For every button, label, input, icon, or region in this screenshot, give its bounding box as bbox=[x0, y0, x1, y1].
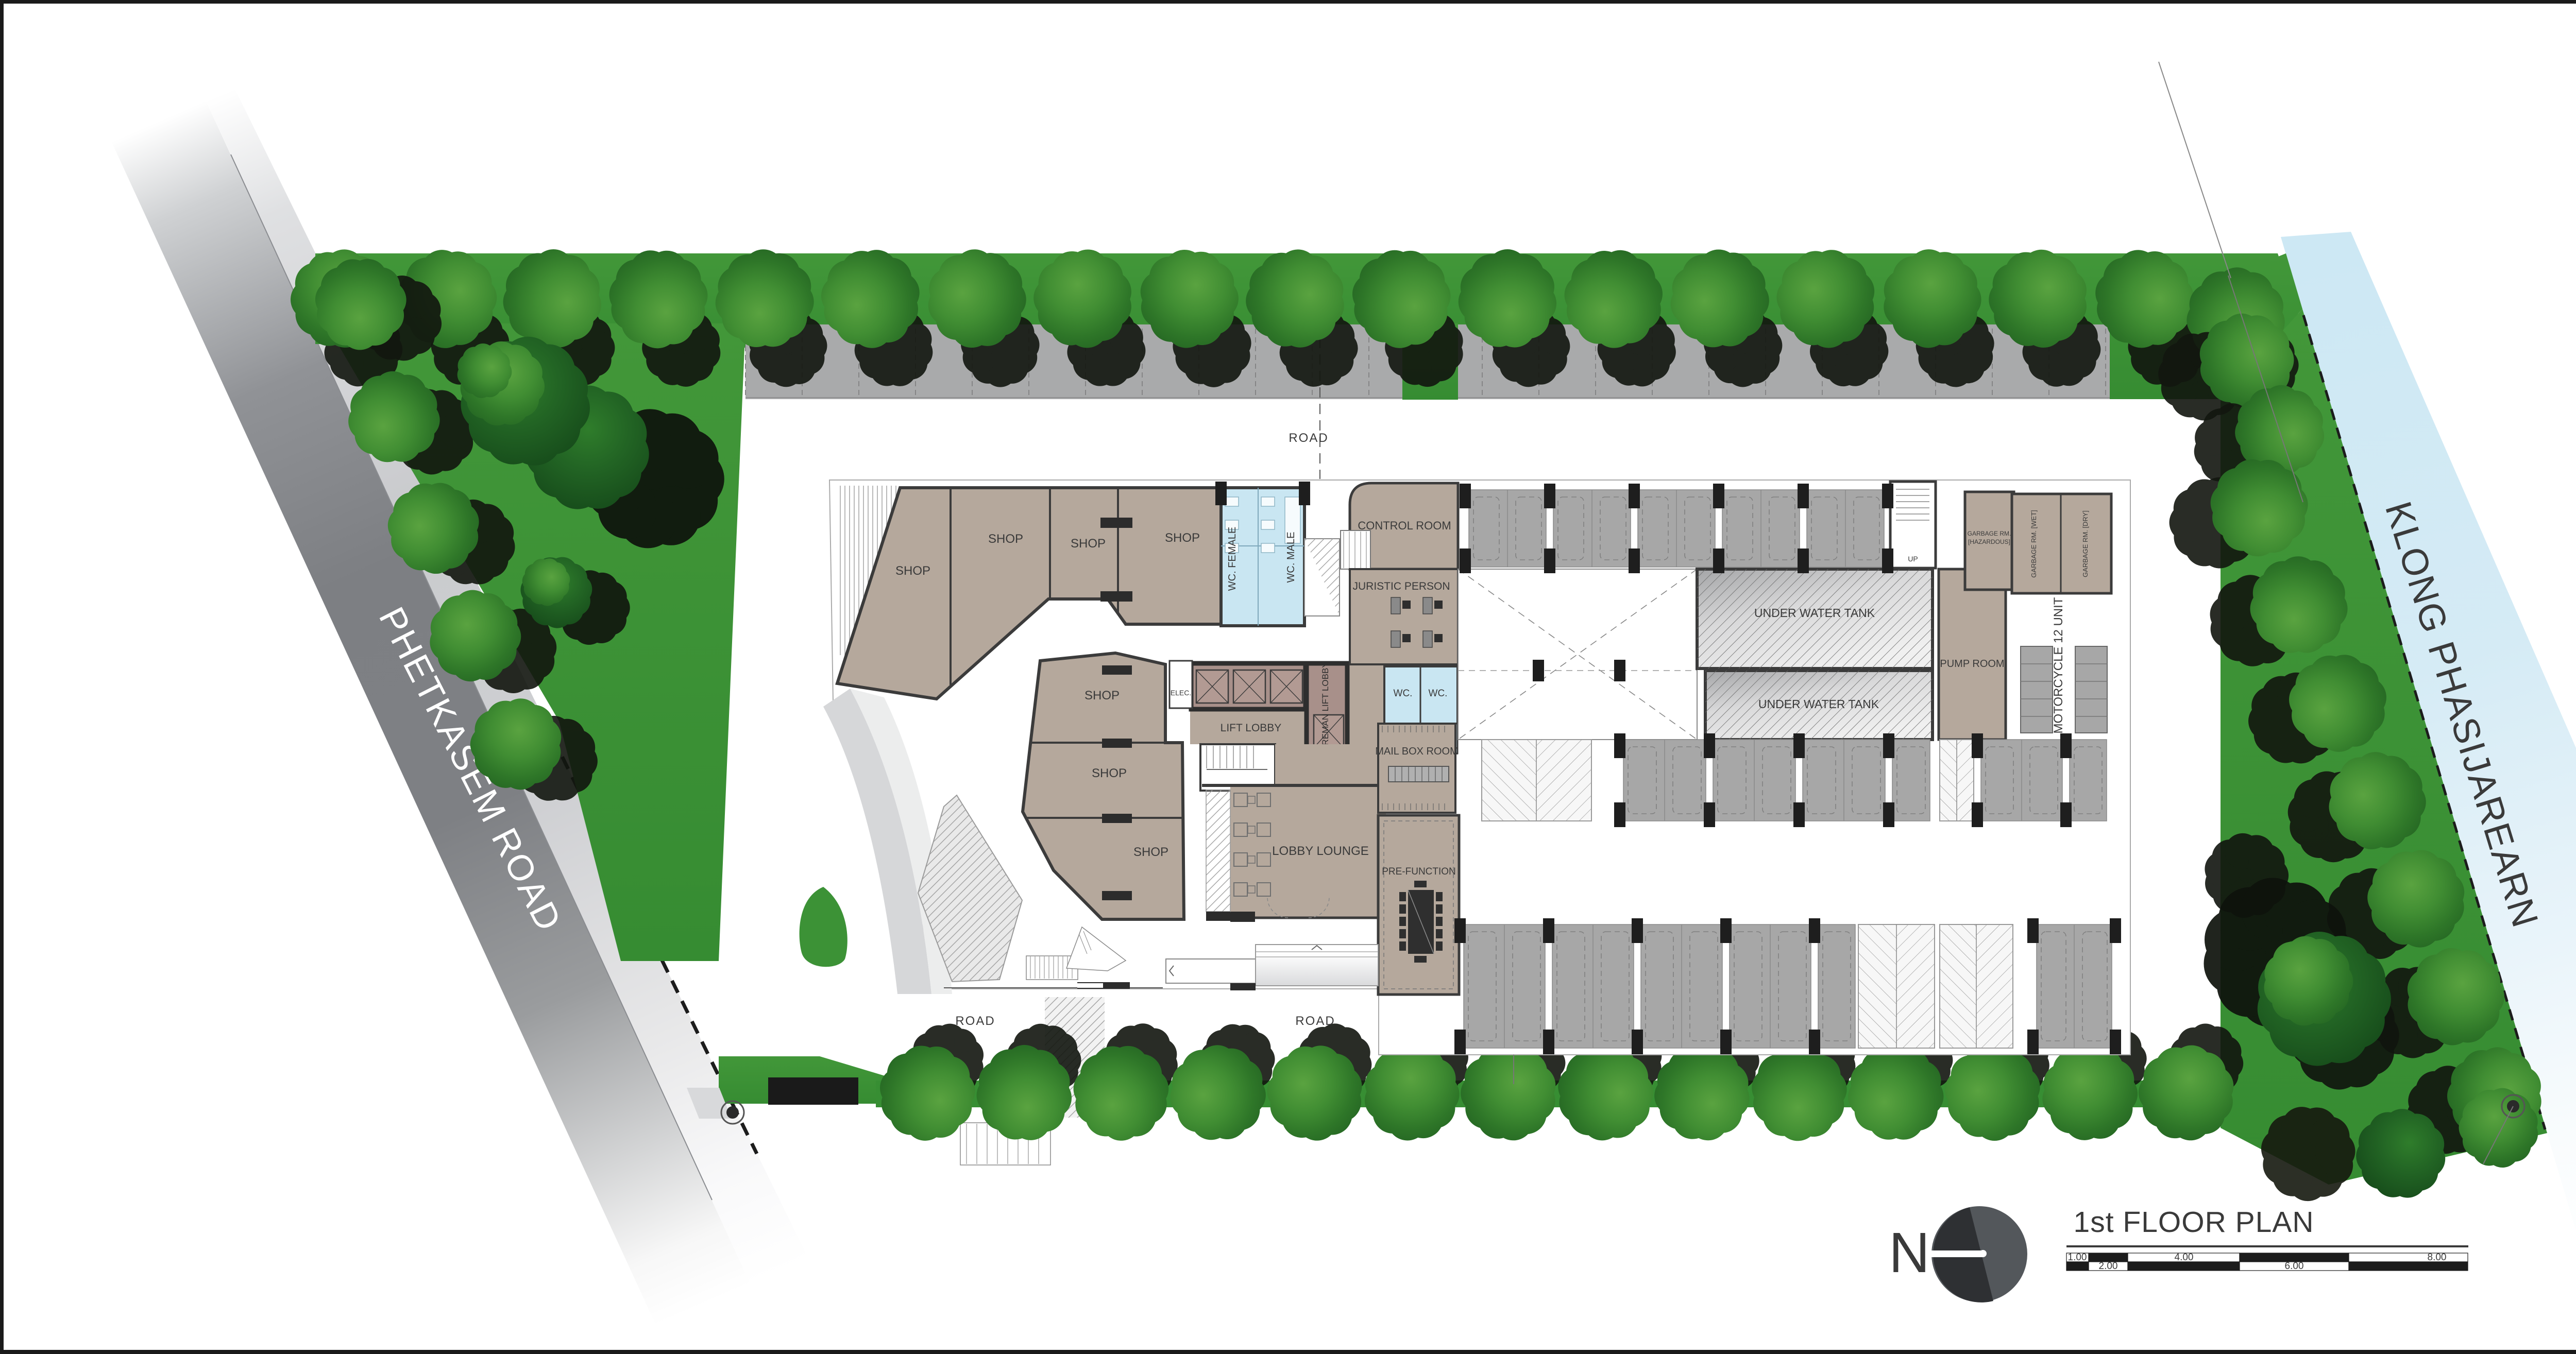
svg-text:LIFT LOBBY: LIFT LOBBY bbox=[1221, 722, 1282, 734]
svg-text:CONTROL ROOM: CONTROL ROOM bbox=[1358, 519, 1451, 532]
svg-text:MAIL BOX ROOM: MAIL BOX ROOM bbox=[1375, 746, 1459, 757]
svg-text:ELEC.: ELEC. bbox=[1171, 689, 1191, 697]
svg-text:JURISTIC PERSON: JURISTIC PERSON bbox=[1352, 580, 1450, 592]
svg-text:GARBAGE RM. [DRY]: GARBAGE RM. [DRY] bbox=[2081, 510, 2089, 577]
svg-text:UNDER WATER TANK: UNDER WATER TANK bbox=[1758, 697, 1879, 711]
svg-text:8.00: 8.00 bbox=[2428, 1252, 2447, 1263]
svg-text:SHOP: SHOP bbox=[1071, 537, 1106, 551]
svg-text:UNDER WATER TANK: UNDER WATER TANK bbox=[1754, 606, 1875, 620]
svg-text:SHOP: SHOP bbox=[1092, 766, 1127, 780]
svg-text:WC. FEMALE: WC. FEMALE bbox=[1227, 527, 1238, 591]
svg-text:PRE-FUNCTION: PRE-FUNCTION bbox=[1382, 866, 1456, 877]
svg-text:1st FLOOR PLAN: 1st FLOOR PLAN bbox=[2074, 1206, 2314, 1239]
svg-text:SHOP: SHOP bbox=[1165, 531, 1200, 545]
svg-text:FIREMAN LIFT LOBBY: FIREMAN LIFT LOBBY bbox=[1320, 662, 1330, 753]
svg-text:SHOP: SHOP bbox=[988, 532, 1023, 546]
svg-text:[HAZARDOUS]: [HAZARDOUS] bbox=[1968, 538, 2010, 545]
svg-text:2.00: 2.00 bbox=[2099, 1261, 2118, 1272]
svg-text:PUMP ROOM: PUMP ROOM bbox=[1940, 658, 2004, 670]
svg-text:N: N bbox=[1889, 1221, 1929, 1284]
svg-text:1.00: 1.00 bbox=[2068, 1252, 2087, 1263]
svg-text:WC. MALE: WC. MALE bbox=[1285, 532, 1297, 583]
svg-text:MOTORCYCLE 12 UNIT: MOTORCYCLE 12 UNIT bbox=[2052, 597, 2065, 733]
svg-text:LOBBY LOUNGE: LOBBY LOUNGE bbox=[1272, 844, 1369, 858]
svg-text:WC.: WC. bbox=[1429, 688, 1448, 699]
svg-text:4.00: 4.00 bbox=[2175, 1252, 2194, 1263]
svg-text:6.00: 6.00 bbox=[2285, 1261, 2304, 1272]
svg-text:SHOP: SHOP bbox=[1133, 845, 1168, 859]
svg-text:GARBAGE RM.: GARBAGE RM. bbox=[1968, 530, 2011, 537]
svg-text:UP: UP bbox=[1908, 555, 1918, 563]
svg-text:ROAD: ROAD bbox=[955, 1014, 995, 1028]
svg-text:SHOP: SHOP bbox=[895, 564, 930, 578]
svg-text:ROAD: ROAD bbox=[1289, 431, 1328, 445]
svg-text:GARBAGE RM. [WET]: GARBAGE RM. [WET] bbox=[2030, 510, 2038, 577]
svg-text:ROAD: ROAD bbox=[1295, 1014, 1335, 1028]
svg-text:WC.: WC. bbox=[1394, 688, 1413, 699]
svg-text:SHOP: SHOP bbox=[1084, 689, 1120, 702]
